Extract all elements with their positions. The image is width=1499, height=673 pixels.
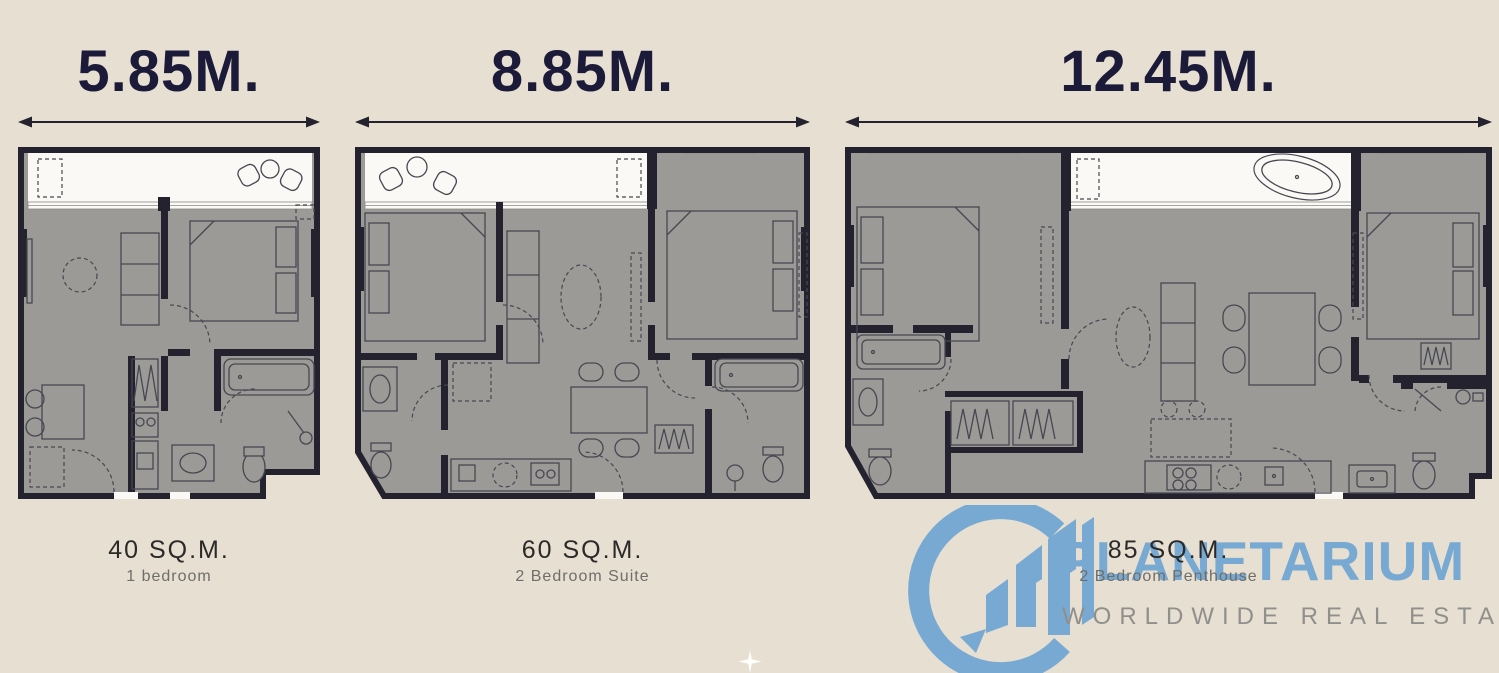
watermark: PLANETARIUM WORLDWIDE REAL ESTATE [890,505,1499,673]
floorplan-85sqm [845,147,1492,507]
arrowhead-right [306,117,320,128]
pillow-icon [773,221,793,263]
brand-tagline: WORLDWIDE REAL ESTATE [1062,603,1499,631]
pillow-icon [276,227,296,267]
pillow-icon [1453,223,1473,267]
floorplan-sheet: 5.85M. [0,0,1499,673]
toilet-icon [869,457,891,485]
dimension-label: 8.85M. [355,38,810,105]
pillow-icon [773,269,793,311]
vanity-icon [1349,465,1395,493]
balcony [365,152,651,209]
floorplan-60sqm [355,147,810,507]
arrowhead-left [355,117,369,128]
floorplan-40sqm [18,147,320,507]
unit-type-label: 2 Bedroom Suite [355,568,810,586]
vanity-icon [172,445,214,481]
bathtub-icon [715,359,803,391]
area-label: 40 SQ.M. [18,536,320,565]
area-label: 85 SQ.M. [845,536,1492,565]
pillow-icon [1453,271,1473,315]
unit-type-label: 1 bedroom [18,568,320,586]
terrace [1069,147,1357,209]
arrowhead-left [845,117,859,128]
vanity-icon [363,367,397,411]
dimension-arrow [845,114,1492,130]
toilet-icon [1413,461,1435,489]
toilet-icon [371,452,391,478]
pillow-icon [861,269,883,315]
toilet-icon [763,456,783,482]
pillow-icon [369,271,389,313]
unit-type-label: 2 Bedroom Penthouse [845,568,1492,586]
pillow-icon [861,217,883,263]
sparkle-icon [728,650,772,673]
arrowhead-right [796,117,810,128]
pillow-icon [369,223,389,265]
pillow-icon [276,273,296,313]
dimension-label: 5.85M. [18,38,320,105]
arrowhead-right [1478,117,1492,128]
vanity-icon [853,379,883,425]
arrowhead-left [18,117,32,128]
dimension-label: 12.45M. [845,38,1492,105]
dimension-arrow [18,114,320,130]
dimension-arrow [355,114,810,130]
area-label: 60 SQ.M. [355,536,810,565]
